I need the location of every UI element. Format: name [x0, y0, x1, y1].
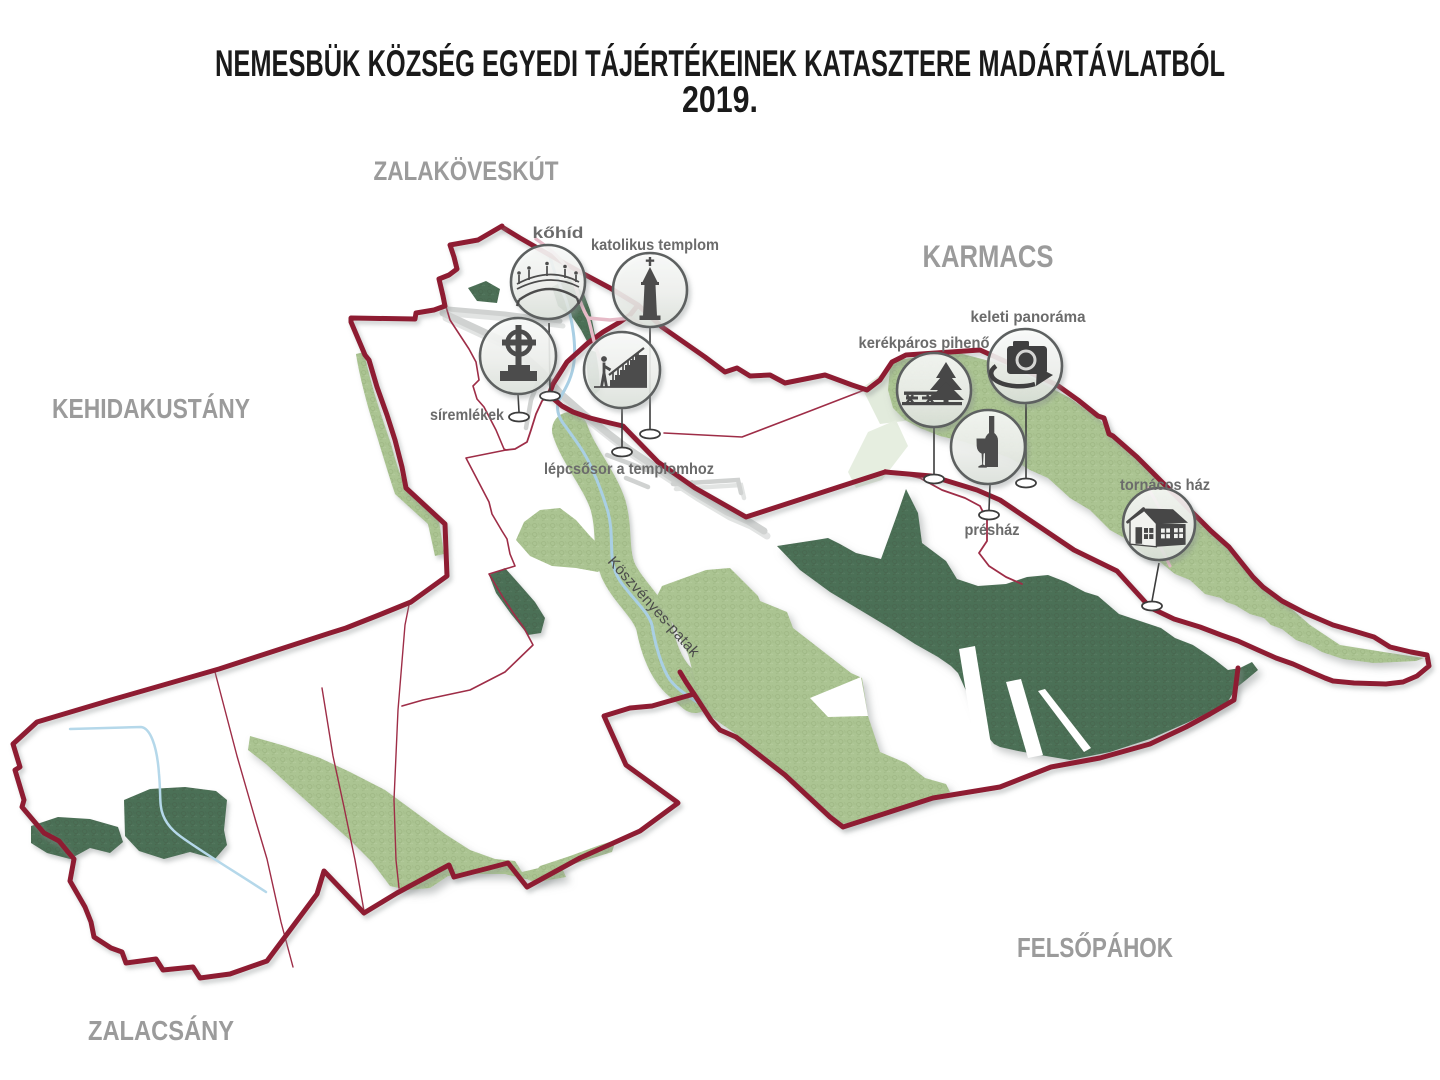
- svg-text:FELSŐPÁHOK: FELSŐPÁHOK: [1017, 932, 1173, 963]
- svg-text:katolikus templom: katolikus templom: [591, 237, 719, 254]
- svg-text:tornácos ház: tornácos ház: [1120, 477, 1210, 494]
- svg-text:présház: présház: [965, 522, 1020, 539]
- svg-text:kőhíd: kőhíd: [533, 225, 584, 242]
- svg-text:KARMACS: KARMACS: [923, 238, 1054, 274]
- svg-text:lépcsősor a templomhoz: lépcsősor a templomhoz: [544, 461, 714, 478]
- svg-text:keleti panoráma: keleti panoráma: [971, 309, 1086, 326]
- svg-text:ZALACSÁNY: ZALACSÁNY: [88, 1015, 234, 1046]
- svg-text:NEMESBÜK KÖZSÉG EGYEDI TÁJÉRTÉ: NEMESBÜK KÖZSÉG EGYEDI TÁJÉRTÉKEINEK KAT…: [215, 42, 1225, 84]
- svg-text:2019.: 2019.: [682, 79, 758, 120]
- svg-text:síremlékek: síremlékek: [430, 407, 504, 424]
- svg-text:kerékpáros pihenő: kerékpáros pihenő: [859, 335, 990, 352]
- svg-text:ZALAKÖVESKÚT: ZALAKÖVESKÚT: [374, 155, 559, 186]
- svg-text:KEHIDAKUSTÁNY: KEHIDAKUSTÁNY: [52, 393, 250, 424]
